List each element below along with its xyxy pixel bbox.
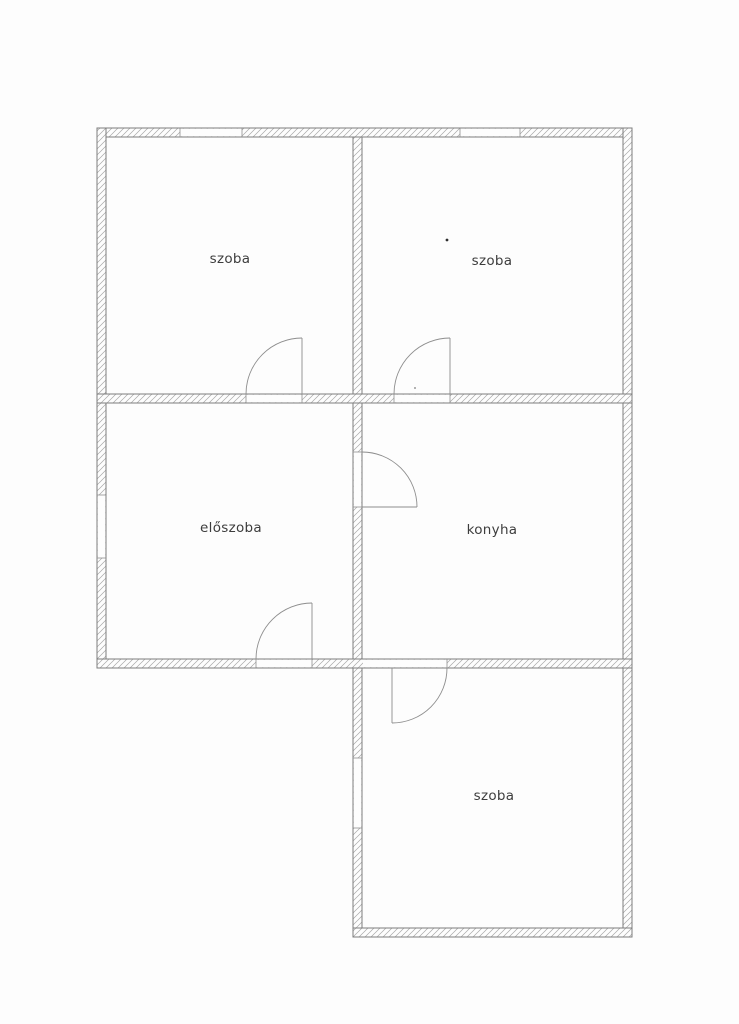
wall-exterior-top (97, 128, 632, 137)
window-top-wall-left (180, 128, 242, 137)
room-label-szoba-top-right: szoba (472, 253, 513, 269)
room-label-eloszoba: előszoba (200, 520, 262, 536)
door-opening-szoba-top-right (394, 394, 450, 403)
scan-speck-dot (446, 239, 449, 242)
door-opening-szoba-top-left (246, 394, 302, 403)
wall-divider-middle-rooms (353, 403, 362, 659)
wall-exterior-right (623, 128, 632, 937)
wall-divider-top-rooms (353, 137, 362, 394)
wall-interior-middle-upper (97, 394, 632, 403)
room-label-szoba-bottom: szoba (474, 788, 515, 804)
room-label-konyha: konyha (467, 522, 518, 538)
window-left-wall (97, 495, 106, 558)
scanned-page: szoba szoba előszoba konyha szoba (0, 0, 739, 1024)
door-opening-konyha (353, 452, 362, 507)
room-label-szoba-top-left: szoba (210, 251, 251, 267)
floor-plan: szoba szoba előszoba konyha szoba (0, 0, 739, 1024)
window-top-wall-right (460, 128, 520, 137)
window-bottom-room-left (353, 758, 362, 828)
scan-speck-faint (414, 387, 416, 389)
room-areas (106, 137, 623, 928)
door-opening-eloszoba (256, 659, 312, 668)
wall-exterior-bottom (353, 928, 632, 937)
door-opening-szoba-bottom (363, 659, 447, 668)
